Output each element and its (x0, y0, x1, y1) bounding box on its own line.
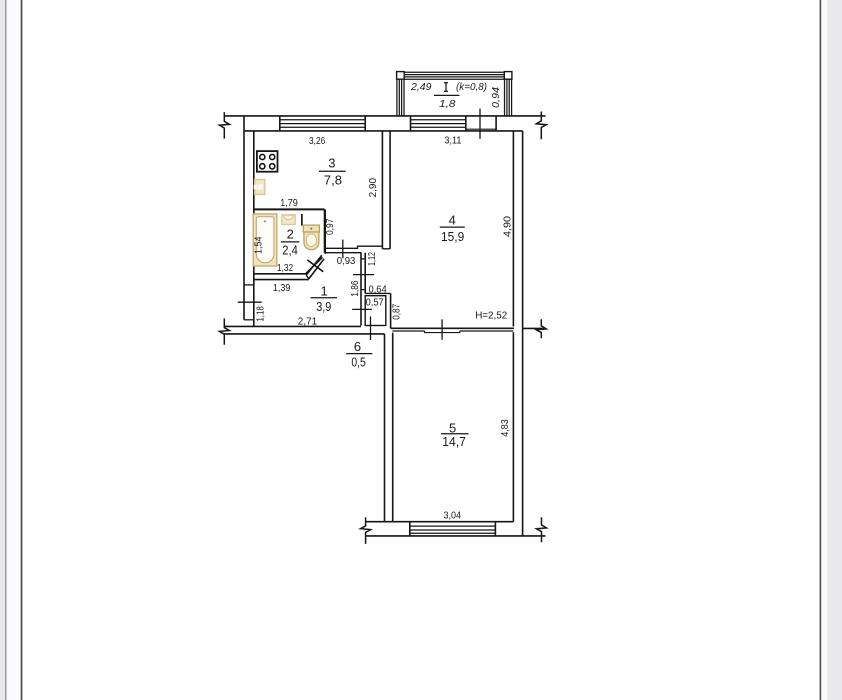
svg-text:7,8: 7,8 (324, 173, 342, 188)
svg-text:1,79: 1,79 (280, 198, 298, 209)
svg-text:1,86: 1,86 (350, 280, 361, 297)
svg-text:2: 2 (287, 227, 294, 242)
svg-text:1,8: 1,8 (439, 99, 456, 110)
svg-text:1,32: 1,32 (277, 263, 294, 274)
svg-text:3: 3 (328, 156, 335, 171)
svg-text:4,90: 4,90 (503, 216, 514, 237)
svg-text:3,11: 3,11 (444, 135, 461, 146)
svg-text:2,4: 2,4 (282, 242, 298, 257)
svg-text:(k=0,8): (k=0,8) (456, 82, 487, 93)
svg-text:4,83: 4,83 (500, 419, 511, 437)
svg-text:1: 1 (321, 284, 328, 299)
svg-text:0,93: 0,93 (337, 256, 356, 267)
svg-text:14,7: 14,7 (442, 434, 466, 449)
svg-text:0,5: 0,5 (351, 354, 365, 369)
svg-text:0,57: 0,57 (366, 298, 385, 309)
svg-text:H=2,52: H=2,52 (475, 311, 507, 322)
svg-text:3,04: 3,04 (444, 510, 462, 521)
svg-text:1,54: 1,54 (254, 236, 265, 254)
svg-text:15,9: 15,9 (441, 229, 464, 244)
svg-text:3,9: 3,9 (316, 299, 331, 314)
svg-text:1,18: 1,18 (256, 306, 267, 322)
svg-text:1,39: 1,39 (273, 283, 291, 294)
svg-text:2,49: 2,49 (410, 82, 432, 93)
svg-text:1,12: 1,12 (367, 252, 378, 266)
svg-text:0,94: 0,94 (491, 87, 502, 108)
svg-text:2,90: 2,90 (368, 178, 379, 198)
svg-text:0,97: 0,97 (325, 218, 336, 235)
svg-text:3,26: 3,26 (309, 136, 326, 147)
svg-text:0,87: 0,87 (392, 303, 403, 319)
svg-text:6: 6 (354, 339, 361, 354)
svg-text:4: 4 (449, 213, 456, 228)
